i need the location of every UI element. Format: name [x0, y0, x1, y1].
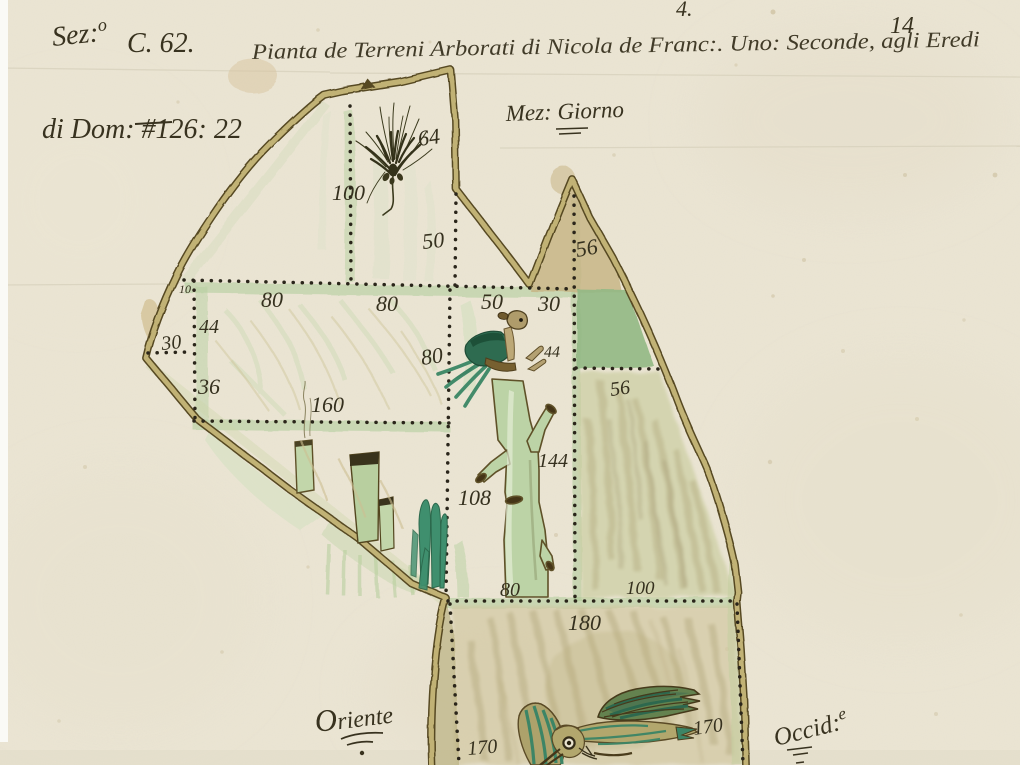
svg-text:100: 100: [332, 180, 365, 205]
svg-text:170: 170: [467, 735, 499, 760]
svg-text:56: 56: [609, 376, 632, 401]
svg-text:C. 62.: C. 62.: [127, 28, 195, 59]
svg-text:di Dom: #126: 22: di Dom: #126: 22: [42, 114, 242, 145]
svg-text:80: 80: [419, 342, 444, 370]
svg-text:44: 44: [199, 316, 219, 338]
svg-text:36: 36: [197, 374, 220, 399]
svg-text:80: 80: [500, 579, 520, 601]
svg-text:4.: 4.: [676, 0, 693, 21]
svg-text:170: 170: [692, 714, 725, 740]
svg-text:100: 100: [626, 578, 655, 599]
svg-text:64: 64: [416, 123, 441, 151]
svg-text:144: 144: [538, 450, 568, 472]
svg-text:50: 50: [481, 289, 503, 314]
svg-text:160: 160: [311, 392, 344, 417]
svg-text:80: 80: [376, 291, 398, 316]
svg-text:30: 30: [159, 331, 182, 355]
svg-text:80: 80: [261, 287, 283, 312]
svg-text:30: 30: [537, 291, 560, 316]
svg-text:180: 180: [568, 610, 601, 635]
svg-text:56: 56: [574, 233, 600, 261]
svg-text:10: 10: [179, 282, 191, 296]
svg-text:14: 14: [890, 13, 914, 39]
svg-text:108: 108: [458, 485, 491, 510]
svg-text:44: 44: [544, 344, 560, 361]
svg-text:50: 50: [421, 227, 445, 254]
svg-text:Mez: Giorno: Mez: Giorno: [504, 97, 624, 126]
